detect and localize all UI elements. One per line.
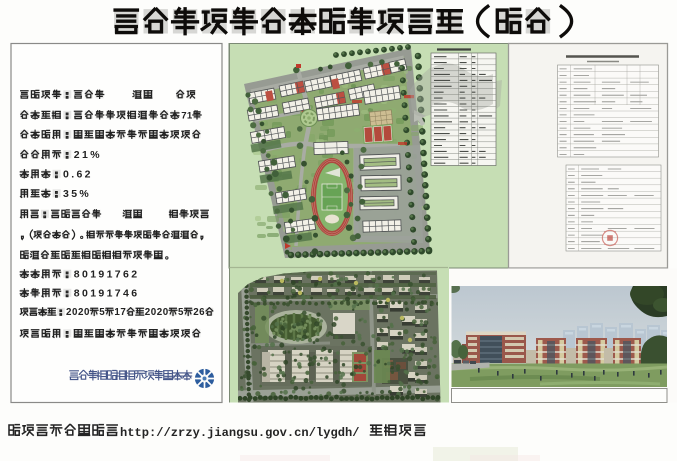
svg-text:%: %: [79, 188, 91, 200]
svg-text:%: %: [90, 149, 102, 161]
svg-text:26: 26: [193, 307, 205, 318]
svg-text:35: 35: [63, 188, 79, 200]
svg-text:5: 5: [178, 307, 184, 318]
svg-text:80191762: 80191762: [74, 269, 140, 281]
svg-text:2020: 2020: [145, 307, 169, 318]
svg-text:0.62: 0.62: [63, 169, 93, 181]
svg-text:71: 71: [181, 111, 193, 122]
svg-text:http://zrzy.jiangsu.gov.cn/lyg: http://zrzy.jiangsu.gov.cn/lygdh/: [120, 426, 360, 440]
svg-text:5: 5: [99, 307, 105, 318]
svg-text:17: 17: [114, 307, 126, 318]
svg-text:80191746: 80191746: [74, 288, 140, 300]
svg-text:21: 21: [74, 149, 90, 161]
svg-text:2020: 2020: [66, 307, 90, 318]
